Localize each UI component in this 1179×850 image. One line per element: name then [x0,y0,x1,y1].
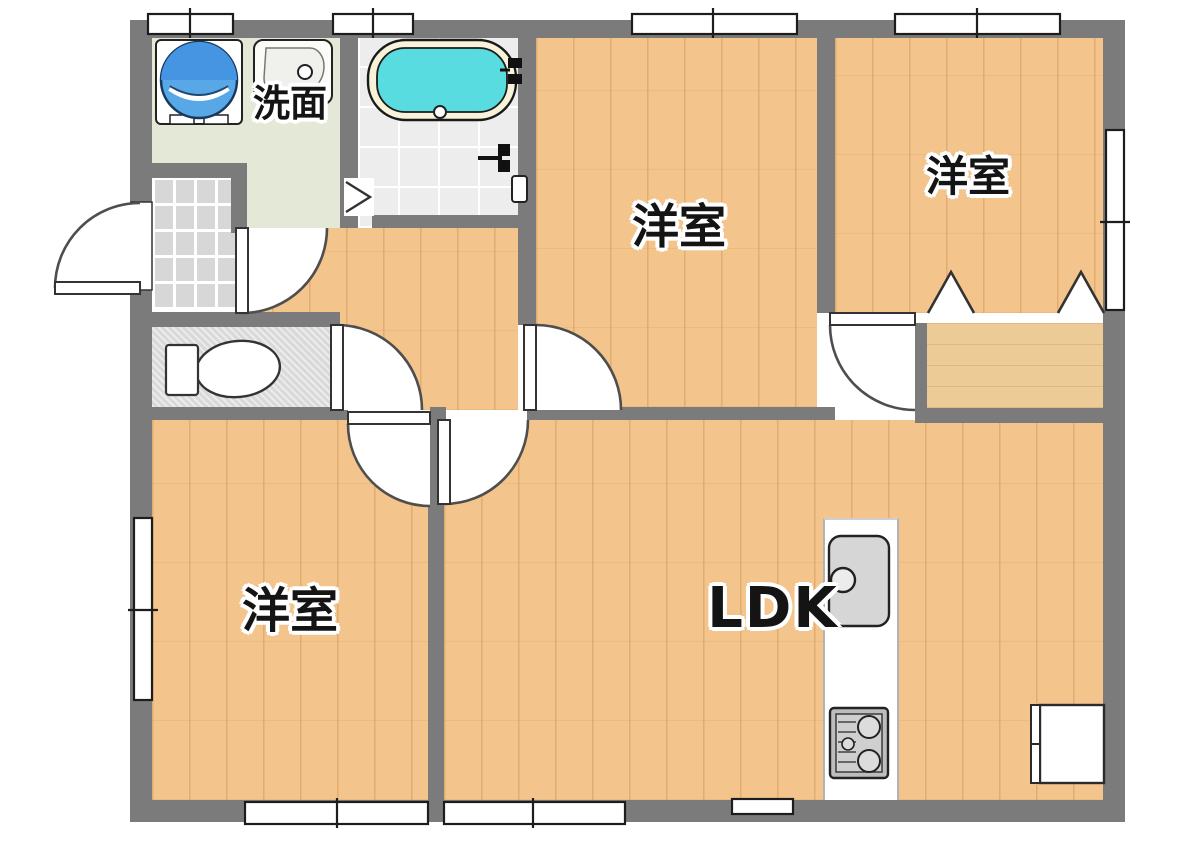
floorplan: 洗面 洋室 洋室 洋室 LDK [0,0,1179,850]
window-ldk-large-icon [444,798,625,828]
bathtub-icon [368,40,522,120]
washroom-door-swing-icon [236,228,327,313]
shower-mixer-icon [478,144,527,202]
window-bedroom-bottom-left-icon [245,798,428,828]
toilet-icon [166,337,283,401]
window-bedroom-right-top-icon [895,8,1060,38]
room-label-bedroom-top-middle: 洋室 [589,192,769,252]
refrigerator-space-icon [1031,705,1104,783]
closet-bifold-icon [928,272,1104,313]
bedroom-right-door-swing-icon [830,313,915,410]
window-bedroom-middle-icon [632,8,797,38]
toilet-door-swing-icon [331,325,422,410]
bedroom-bottom-left-door-swing-icon [348,412,430,506]
window-bedroom-right-side-icon [1100,130,1130,310]
fixtures-overlay [0,0,1179,850]
room-label-washroom: 洗面 [225,74,355,126]
window-bedroom-bottom-left-side-icon [128,518,158,700]
window-ldk-small-icon [732,799,793,814]
ldk-door-swing-icon [438,420,528,504]
stove-icon [830,708,888,778]
room-label-ldk: LDK [688,576,858,640]
room-label-bedroom-top-right: 洋室 [878,146,1058,200]
folding-door-icon [344,178,374,216]
window-washroom-icon [148,8,233,38]
bedroom-middle-door-swing-icon [524,325,621,410]
room-label-bedroom-bottom-left: 洋室 [200,574,380,638]
window-bathroom-icon [333,8,413,38]
entrance-door-icon [55,203,140,294]
